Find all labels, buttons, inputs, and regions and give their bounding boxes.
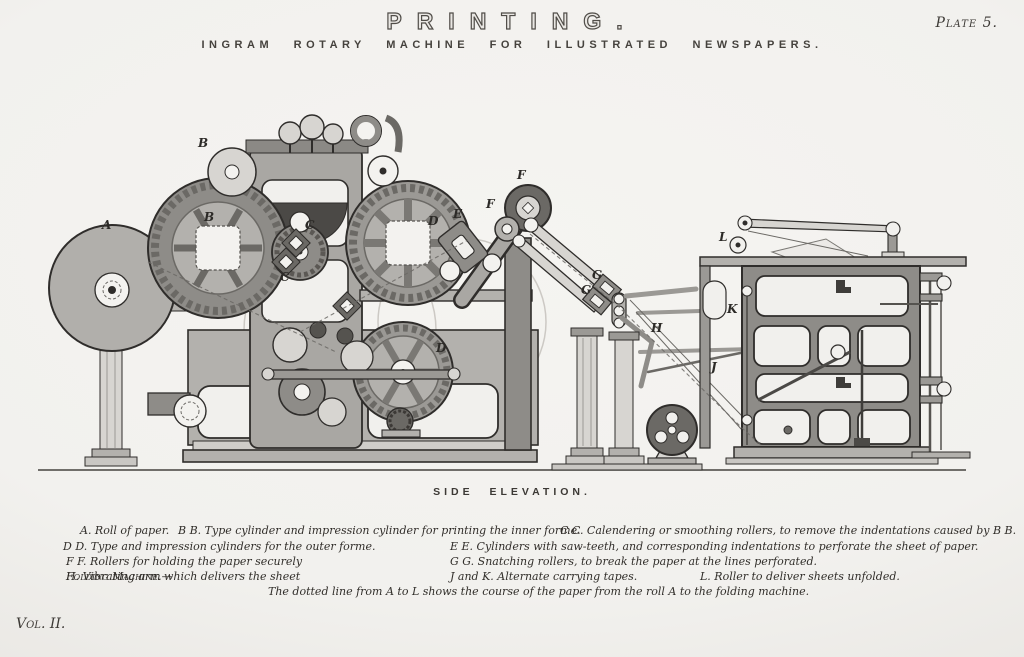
book-plate: PRINTING. Plate 5. INGRAM ROTARY MACHINE… (0, 0, 1024, 657)
legend-note: The dotted line from A to L shows the co… (268, 585, 809, 598)
legend-entry-gg: G G. Snatching rollers, to break the pap… (450, 555, 817, 568)
legend: A. Roll of paper. B B. Type cylinder and… (0, 0, 1024, 657)
legend-entry-cc: C C. Calendering or smoothing rollers, t… (560, 524, 1016, 537)
volume-label: Vol. II. (16, 616, 65, 632)
legend-entry-jk: J and K. Alternate carrying tapes. (450, 570, 637, 583)
legend-entry-ff: F F. Rollers for holding the paper secur… (66, 555, 302, 568)
legend-entry-ee: E E. Cylinders with saw-teeth, and corre… (450, 540, 978, 553)
legend-entry-h: H. Vibrating arm which delivers the shee… (66, 570, 300, 583)
legend-entry-bb: B B. Type cylinder and impression cylind… (178, 524, 581, 537)
legend-entry-dd: D D. Type and impression cylinders for t… (63, 540, 375, 553)
legend-entry-l: L. Roller to deliver sheets unfolded. (700, 570, 900, 583)
legend-entry-a: A. Roll of paper. (80, 524, 169, 537)
